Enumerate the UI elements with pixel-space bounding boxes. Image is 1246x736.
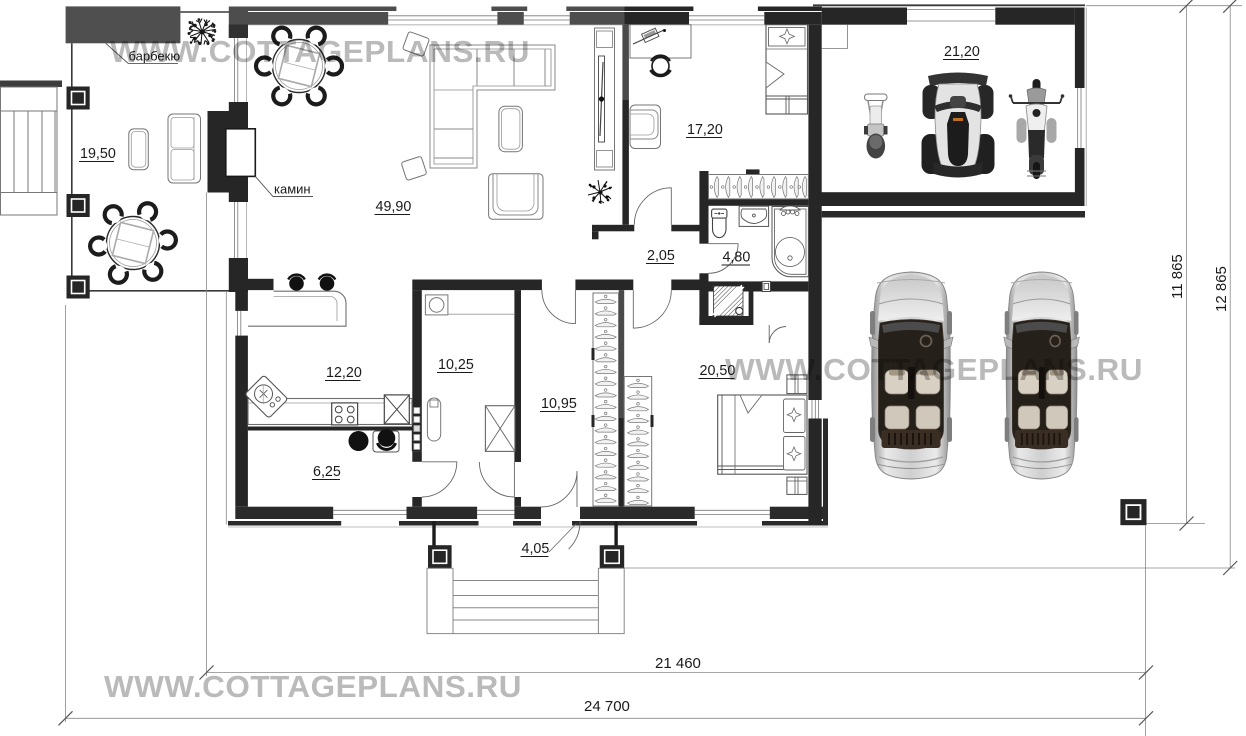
svg-text:4,80: 4,80 [723,250,751,266]
svg-text:WWW.COTTAGEPLANS.RU: WWW.COTTAGEPLANS.RU [110,34,530,69]
svg-text:12,20: 12,20 [326,365,362,381]
svg-text:10,25: 10,25 [438,357,474,373]
svg-text:21,20: 21,20 [944,44,980,60]
svg-text:4,05: 4,05 [522,541,550,557]
svg-text:2,05: 2,05 [647,248,675,264]
svg-text:камин: камин [274,182,311,197]
svg-text:10,95: 10,95 [541,396,577,412]
svg-text:19,50: 19,50 [80,146,116,162]
svg-text:12 865: 12 865 [1213,266,1230,312]
svg-text:WWW.COTTAGEPLANS.RU: WWW.COTTAGEPLANS.RU [104,669,522,704]
svg-text:49,90: 49,90 [376,199,412,215]
svg-text:6,25: 6,25 [313,464,341,480]
svg-text:24 700: 24 700 [584,698,630,715]
svg-text:21 460: 21 460 [655,655,701,672]
svg-text:WWW.COTTAGEPLANS.RU: WWW.COTTAGEPLANS.RU [725,352,1143,387]
svg-text:11 865: 11 865 [1169,254,1186,299]
svg-text:17,20: 17,20 [687,122,723,138]
